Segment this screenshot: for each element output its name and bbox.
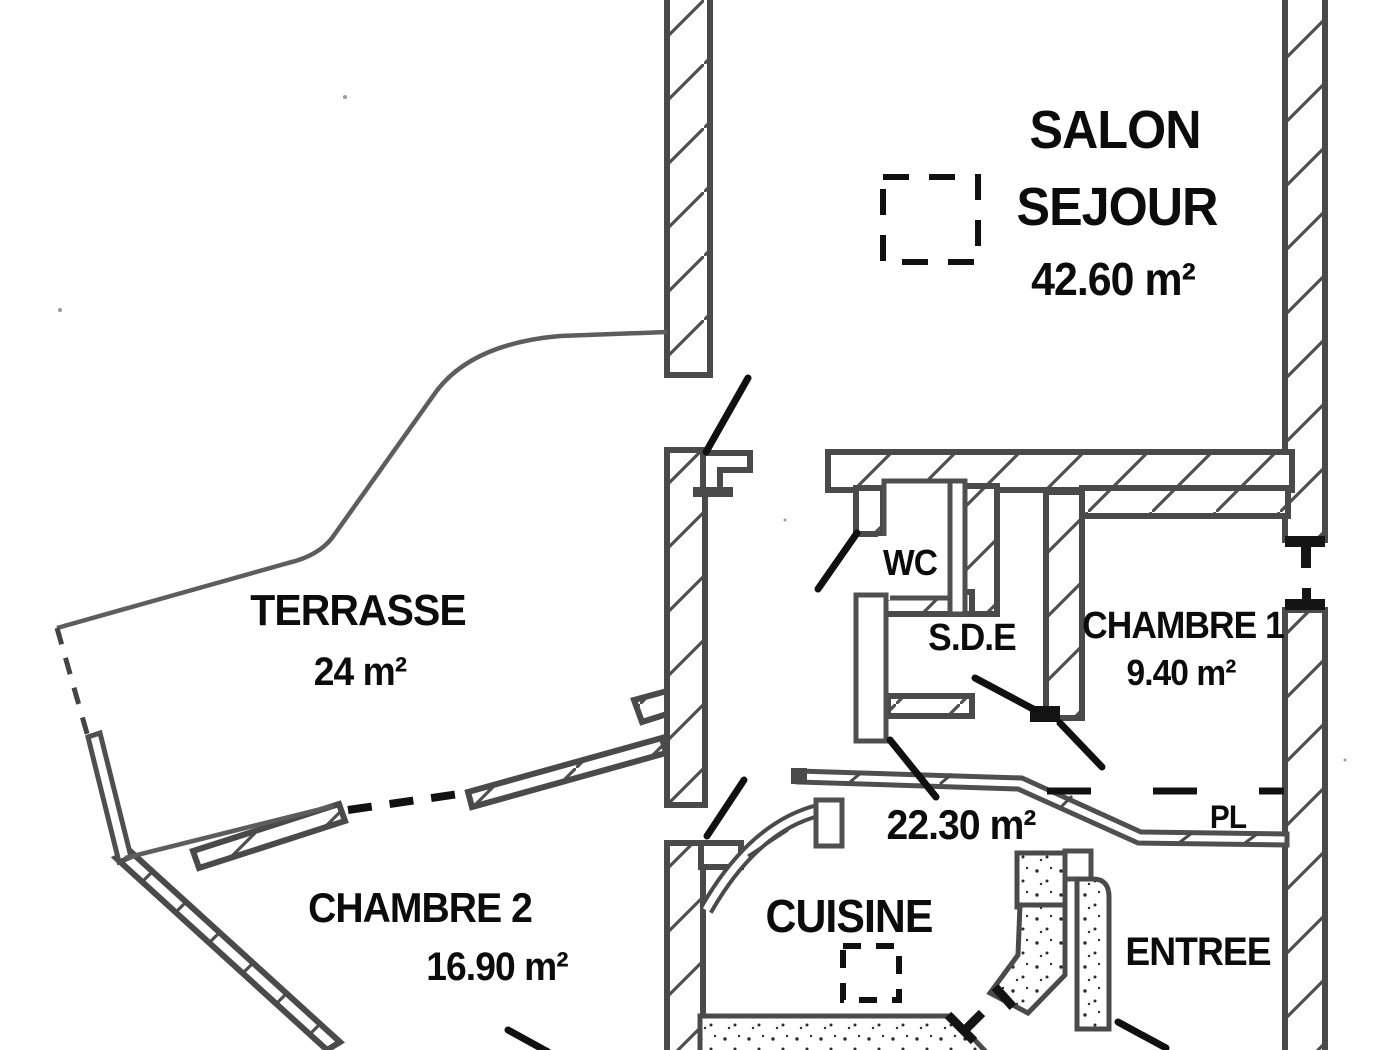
room-label-terrasse: TERRASSE [250, 589, 465, 633]
room-label-placard: PL [1210, 801, 1246, 833]
chambre2-door-swing [508, 1030, 548, 1050]
hall-wall-stub [816, 800, 842, 846]
floor-plan-canvas: SALON SEJOUR 42.60 m² TERRASSE 24 m² WC … [0, 0, 1400, 1050]
wall-chambre2-sw [116, 851, 340, 1050]
window-stub-upper [1301, 547, 1311, 568]
wall-chambre1-north [1082, 488, 1288, 516]
wall-chambre2-nw-2 [468, 738, 666, 807]
wall-right-lower [1285, 610, 1325, 1050]
cuisine-door-swing [707, 780, 744, 836]
room-label-entree: ENTREE [1125, 932, 1270, 972]
salon-dashed-fixture [883, 177, 978, 262]
wall-chambre1-west [1046, 492, 1082, 718]
wc-east-thin-wall [950, 481, 965, 614]
room-area-terrasse: 24 m² [314, 652, 407, 692]
wall-top-center [667, 0, 710, 375]
room-area-cuisine: 22.30 m² [887, 804, 1036, 846]
room-label-chambre1: CHAMBRE 1 [1082, 607, 1284, 645]
wall-wc-step [856, 488, 883, 534]
wall-center-spur [634, 691, 667, 722]
terrasse-edge-line [57, 332, 667, 628]
chambre1-door-swing [1060, 723, 1102, 767]
entree-stippled-wall [1077, 879, 1109, 1029]
room-area-salon: 42.60 m² [1031, 256, 1195, 302]
room-label-salon-line2: SEJOUR [1017, 180, 1218, 234]
placard-wall-cap [791, 768, 807, 784]
terrasse-rail [88, 733, 131, 862]
wall-sde-south [888, 696, 972, 716]
duct-white-box [1065, 851, 1091, 879]
wall-center-arm [703, 453, 750, 492]
sde-door-swing [890, 740, 936, 797]
duct-upper-block [1017, 853, 1065, 907]
room-label-wc: WC [883, 545, 937, 581]
room-label-cuisine: CUISINE [765, 893, 932, 939]
room-label-chambre2: CHAMBRE 2 [308, 887, 532, 929]
entree-door-swing [1118, 1022, 1166, 1048]
terrasse-dashed-edge [57, 628, 88, 737]
stippled-walls [700, 851, 1109, 1050]
sde-inner-door-swing [975, 678, 1035, 710]
room-label-salon-line1: SALON [1029, 103, 1200, 157]
window-cap-upper [1285, 536, 1325, 547]
cuisine-dashed-fixture [843, 946, 899, 1000]
room-label-sde: S.D.E [928, 619, 1016, 657]
room-area-chambre2: 16.90 m² [426, 947, 567, 987]
wc-door-swing [818, 533, 857, 589]
chambre2-dashed-opening [348, 793, 466, 810]
kitchen-south-stippled-wall [700, 1016, 988, 1050]
window-cap-lower [1285, 599, 1325, 610]
salon-door-swing [706, 378, 748, 452]
room-area-chambre1: 9.40 m² [1127, 655, 1236, 691]
door-jamb-tick-3 [966, 1013, 982, 1029]
center-wall-foot [693, 487, 733, 497]
wall-center-middle [667, 450, 705, 805]
sde-west-thin-wall [856, 595, 886, 741]
